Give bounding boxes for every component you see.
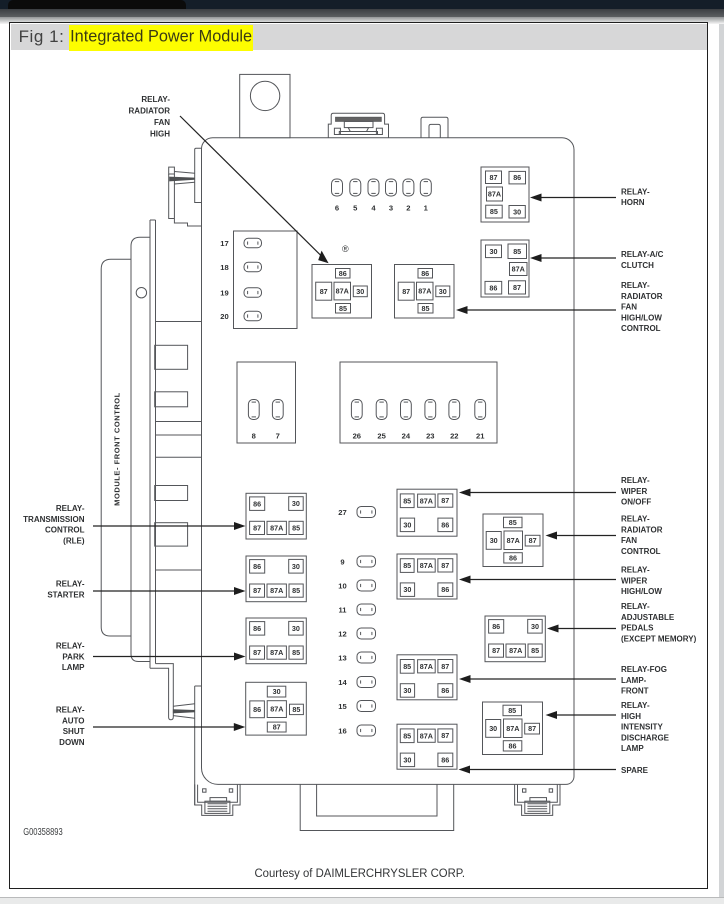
svg-text:19: 19	[220, 288, 228, 297]
svg-text:87A: 87A	[488, 190, 501, 199]
svg-text:87A: 87A	[270, 648, 283, 657]
svg-text:10: 10	[338, 581, 346, 590]
svg-text:25: 25	[377, 432, 386, 441]
svg-text:86: 86	[509, 742, 517, 751]
svg-text:86: 86	[253, 705, 261, 714]
svg-text:87A: 87A	[420, 496, 433, 505]
svg-text:PARK: PARK	[62, 652, 84, 661]
svg-text:INTENSITY: INTENSITY	[621, 723, 663, 732]
svg-text:7: 7	[276, 432, 280, 441]
svg-text:85: 85	[403, 731, 411, 740]
svg-text:11: 11	[338, 605, 347, 614]
svg-text:87A: 87A	[507, 536, 520, 545]
svg-text:2: 2	[406, 204, 410, 213]
svg-text:87: 87	[529, 536, 537, 545]
svg-text:85: 85	[403, 662, 411, 671]
svg-text:87: 87	[253, 648, 261, 657]
svg-text:23: 23	[426, 432, 434, 441]
svg-text:®: ®	[342, 244, 349, 254]
svg-text:20: 20	[220, 312, 228, 321]
svg-text:87: 87	[253, 524, 261, 533]
svg-text:1: 1	[424, 204, 429, 213]
svg-text:(RLE): (RLE)	[63, 536, 85, 545]
svg-text:86: 86	[489, 283, 497, 292]
svg-text:13: 13	[338, 653, 346, 662]
svg-text:87A: 87A	[270, 705, 283, 714]
svg-text:30: 30	[273, 687, 281, 696]
svg-text:87A: 87A	[420, 561, 433, 570]
svg-text:85: 85	[513, 247, 521, 256]
svg-text:ON/OFF: ON/OFF	[621, 498, 651, 507]
svg-text:LAMP-: LAMP-	[621, 676, 647, 685]
svg-text:FAN: FAN	[154, 118, 170, 127]
svg-text:TRANSMISSION: TRANSMISSION	[23, 515, 85, 524]
svg-text:RELAY-: RELAY-	[621, 476, 650, 485]
svg-text:30: 30	[490, 247, 498, 256]
svg-text:RELAY-: RELAY-	[621, 281, 650, 290]
svg-text:85: 85	[292, 705, 300, 714]
svg-text:30: 30	[292, 624, 300, 633]
svg-text:CONTROL: CONTROL	[621, 547, 661, 556]
svg-text:PEDALS: PEDALS	[621, 624, 654, 633]
svg-text:WIPER: WIPER	[621, 487, 647, 496]
svg-text:HIGH: HIGH	[621, 712, 641, 721]
svg-text:CONTROL: CONTROL	[45, 526, 85, 535]
svg-text:MODULE- FRONT CONTROL: MODULE- FRONT CONTROL	[113, 392, 122, 506]
svg-text:30: 30	[403, 686, 411, 695]
svg-text:87: 87	[320, 287, 328, 296]
svg-text:22: 22	[450, 432, 458, 441]
svg-text:85: 85	[490, 207, 498, 216]
svg-text:RELAY-: RELAY-	[141, 95, 170, 104]
svg-text:LAMP: LAMP	[621, 744, 644, 753]
svg-text:RELAY-: RELAY-	[621, 701, 650, 710]
svg-text:87: 87	[513, 283, 521, 292]
svg-text:12: 12	[338, 629, 346, 638]
svg-text:RELAY-: RELAY-	[621, 515, 650, 524]
svg-text:30: 30	[490, 536, 498, 545]
svg-text:RELAY-A/C: RELAY-A/C	[621, 250, 664, 259]
svg-text:86: 86	[441, 585, 449, 594]
svg-text:(EXCEPT MEMORY): (EXCEPT MEMORY)	[621, 634, 697, 643]
svg-text:RADIATOR: RADIATOR	[129, 107, 171, 116]
svg-text:86: 86	[253, 562, 261, 571]
svg-text:86: 86	[441, 686, 449, 695]
svg-text:87A: 87A	[418, 287, 431, 296]
svg-text:86: 86	[513, 173, 521, 182]
svg-text:87: 87	[253, 586, 261, 595]
svg-text:87: 87	[441, 731, 449, 740]
svg-text:FAN: FAN	[621, 303, 637, 312]
svg-text:30: 30	[439, 287, 447, 296]
svg-text:HIGH: HIGH	[150, 130, 170, 139]
svg-text:87: 87	[273, 723, 281, 732]
svg-text:Courtesy of DAIMLERCHRYSLER CO: Courtesy of DAIMLERCHRYSLER CORP.	[255, 866, 466, 880]
svg-text:3: 3	[389, 204, 393, 213]
svg-text:30: 30	[356, 287, 364, 296]
svg-text:16: 16	[338, 726, 346, 735]
svg-text:30: 30	[489, 724, 497, 733]
svg-text:87: 87	[441, 496, 449, 505]
svg-text:RELAY-: RELAY-	[56, 706, 85, 715]
svg-text:21: 21	[476, 432, 485, 441]
svg-text:87A: 87A	[506, 724, 519, 733]
svg-text:DISCHARGE: DISCHARGE	[621, 733, 670, 742]
svg-text:87A: 87A	[270, 524, 283, 533]
svg-text:87A: 87A	[512, 265, 525, 274]
svg-text:FAN: FAN	[621, 536, 637, 545]
svg-text:CONTROL: CONTROL	[621, 324, 661, 333]
svg-text:86: 86	[421, 269, 429, 278]
svg-text:30: 30	[403, 521, 411, 530]
svg-text:30: 30	[403, 756, 411, 765]
svg-text:SPARE: SPARE	[621, 766, 649, 775]
svg-text:WIPER: WIPER	[621, 576, 647, 585]
svg-text:86: 86	[509, 554, 517, 563]
svg-text:86: 86	[441, 521, 449, 530]
svg-text:85: 85	[509, 518, 517, 527]
svg-text:15: 15	[338, 702, 347, 711]
svg-text:CLUTCH: CLUTCH	[621, 261, 654, 270]
svg-text:ADJUSTABLE: ADJUSTABLE	[621, 613, 675, 622]
svg-text:87A: 87A	[336, 287, 349, 296]
svg-text:G00358893: G00358893	[23, 827, 63, 838]
svg-text:RELAY-: RELAY-	[621, 566, 650, 575]
svg-text:86: 86	[492, 622, 500, 631]
svg-text:DOWN: DOWN	[59, 738, 85, 747]
svg-text:30: 30	[513, 207, 521, 216]
svg-text:LAMP: LAMP	[62, 663, 85, 672]
svg-text:85: 85	[292, 524, 300, 533]
svg-text:27: 27	[338, 508, 346, 517]
svg-text:RELAY-: RELAY-	[56, 580, 85, 589]
svg-text:26: 26	[353, 432, 361, 441]
svg-text:24: 24	[402, 432, 411, 441]
svg-text:87: 87	[492, 646, 500, 655]
svg-text:5: 5	[353, 204, 358, 213]
svg-text:30: 30	[403, 585, 411, 594]
svg-text:87: 87	[402, 287, 410, 296]
svg-text:85: 85	[422, 304, 430, 313]
svg-text:9: 9	[340, 557, 344, 566]
svg-text:87: 87	[441, 662, 449, 671]
svg-text:RADIATOR: RADIATOR	[621, 292, 663, 301]
svg-text:6: 6	[335, 204, 339, 213]
svg-text:87: 87	[528, 724, 536, 733]
svg-text:FRONT: FRONT	[621, 687, 649, 696]
svg-text:85: 85	[508, 706, 516, 715]
svg-text:18: 18	[220, 263, 228, 272]
svg-text:AUTO: AUTO	[62, 716, 85, 725]
svg-text:86: 86	[339, 269, 347, 278]
svg-text:RELAY-: RELAY-	[56, 642, 85, 651]
svg-text:85: 85	[403, 561, 411, 570]
svg-text:30: 30	[292, 562, 300, 571]
svg-text:85: 85	[292, 586, 300, 595]
svg-text:8: 8	[252, 432, 256, 441]
svg-text:30: 30	[292, 499, 300, 508]
svg-text:86: 86	[253, 499, 261, 508]
svg-text:30: 30	[531, 622, 539, 631]
svg-text:87: 87	[490, 173, 498, 182]
svg-text:86: 86	[441, 756, 449, 765]
svg-text:RELAY-: RELAY-	[621, 602, 650, 611]
svg-text:RELAY-: RELAY-	[621, 187, 650, 196]
svg-text:87: 87	[441, 561, 449, 570]
svg-text:HIGH/LOW: HIGH/LOW	[621, 587, 662, 596]
svg-text:RELAY-: RELAY-	[56, 504, 85, 513]
svg-text:85: 85	[403, 496, 411, 505]
svg-text:85: 85	[531, 646, 539, 655]
svg-text:87A: 87A	[270, 586, 283, 595]
svg-text:STARTER: STARTER	[47, 590, 84, 599]
svg-text:87A: 87A	[509, 646, 522, 655]
svg-text:86: 86	[253, 624, 261, 633]
svg-text:14: 14	[338, 678, 347, 687]
svg-text:85: 85	[339, 304, 347, 313]
svg-text:4: 4	[371, 204, 376, 213]
svg-text:SHUT: SHUT	[63, 727, 85, 736]
svg-text:17: 17	[220, 239, 228, 248]
svg-text:87A: 87A	[420, 731, 433, 740]
svg-text:85: 85	[292, 648, 300, 657]
svg-text:HIGH/LOW: HIGH/LOW	[621, 313, 662, 322]
svg-text:87A: 87A	[420, 662, 433, 671]
svg-text:RADIATOR: RADIATOR	[621, 525, 663, 534]
svg-text:RELAY-FOG: RELAY-FOG	[621, 665, 667, 674]
svg-text:HORN: HORN	[621, 198, 645, 207]
